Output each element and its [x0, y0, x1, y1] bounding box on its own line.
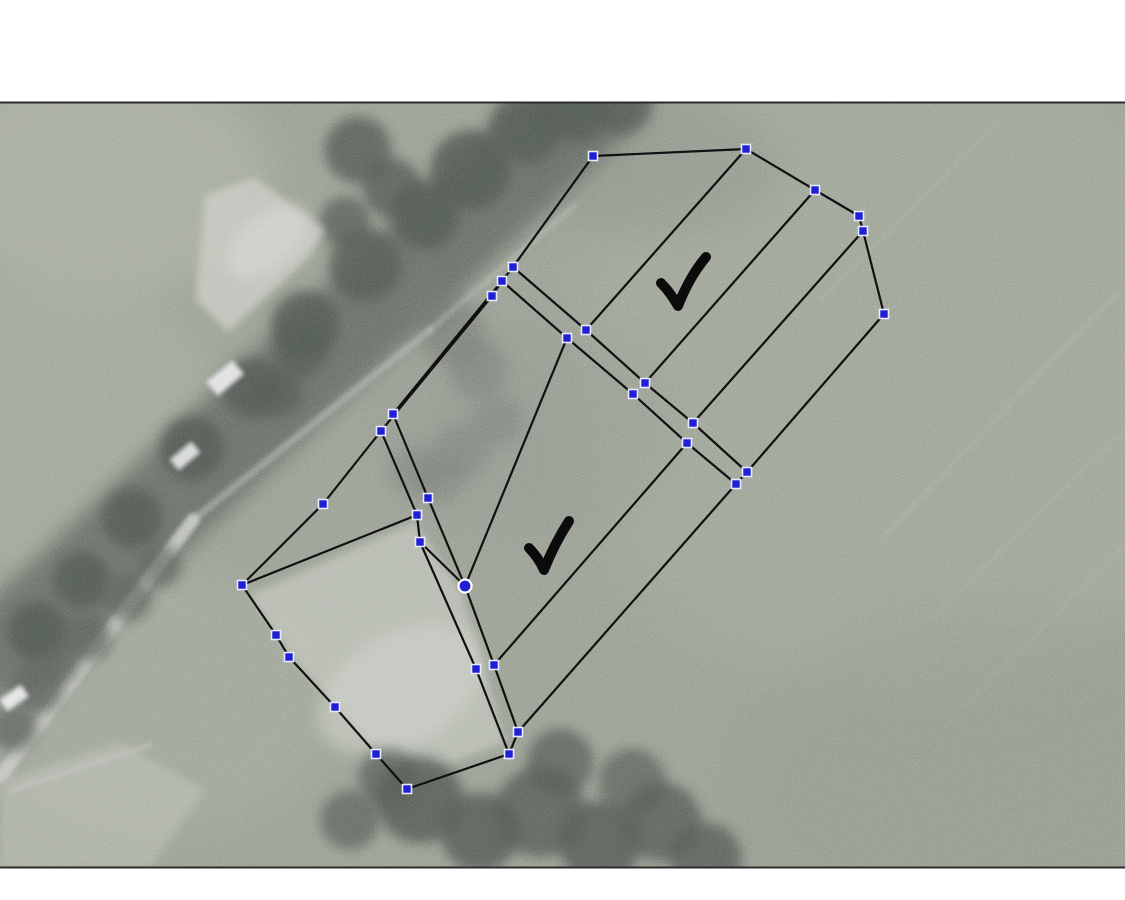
- vertex-handle-D2[interactable]: [416, 538, 425, 547]
- vertex-handle-C5[interactable]: [272, 631, 281, 640]
- vertex-handle-A7[interactable]: [743, 468, 752, 477]
- vertex-handle-A4[interactable]: [855, 212, 864, 221]
- vertex-handle-selected-E1[interactable]: [459, 580, 472, 593]
- annotation-app-canvas[interactable]: [0, 0, 1125, 900]
- vertex-handle-C8[interactable]: [372, 750, 381, 759]
- aerial-photo-with-parcel-overlay[interactable]: [0, 0, 1125, 900]
- vertex-handle-D1[interactable]: [413, 511, 422, 520]
- vertex-handle-E2[interactable]: [472, 665, 481, 674]
- vertex-handle-B1[interactable]: [509, 263, 518, 272]
- vertex-handle-C4[interactable]: [238, 581, 247, 590]
- vertex-handle-E5[interactable]: [514, 728, 523, 737]
- vertex-handle-G2[interactable]: [641, 379, 650, 388]
- vertex-handle-H2[interactable]: [629, 390, 638, 399]
- vertex-handle-C6[interactable]: [285, 653, 294, 662]
- vertex-handle-H3[interactable]: [683, 439, 692, 448]
- vertex-handle-H1[interactable]: [563, 334, 572, 343]
- vertex-handle-G1[interactable]: [582, 326, 591, 335]
- vertex-handle-A5[interactable]: [859, 227, 868, 236]
- vertex-handle-C1[interactable]: [389, 410, 398, 419]
- vertex-handle-A2[interactable]: [742, 145, 751, 154]
- vertex-handle-E3[interactable]: [490, 661, 499, 670]
- vertex-handle-B3[interactable]: [488, 292, 497, 301]
- vertex-handle-A6[interactable]: [880, 310, 889, 319]
- vertex-handle-G3[interactable]: [689, 419, 698, 428]
- vertex-handle-C3[interactable]: [319, 500, 328, 509]
- vertex-handle-C2[interactable]: [377, 427, 386, 436]
- vertex-handle-A1[interactable]: [589, 152, 598, 161]
- vertex-handle-E4[interactable]: [505, 750, 514, 759]
- vertex-handle-B2[interactable]: [498, 277, 507, 286]
- aerial-photo: [0, 40, 1125, 900]
- vertex-handle-D3[interactable]: [424, 494, 433, 503]
- vertex-handle-A8[interactable]: [732, 480, 741, 489]
- vertex-handle-C9[interactable]: [403, 785, 412, 794]
- vertex-handle-C7[interactable]: [331, 703, 340, 712]
- vertex-handle-A3[interactable]: [811, 186, 820, 195]
- photo-grain-2: [0, 102, 1125, 868]
